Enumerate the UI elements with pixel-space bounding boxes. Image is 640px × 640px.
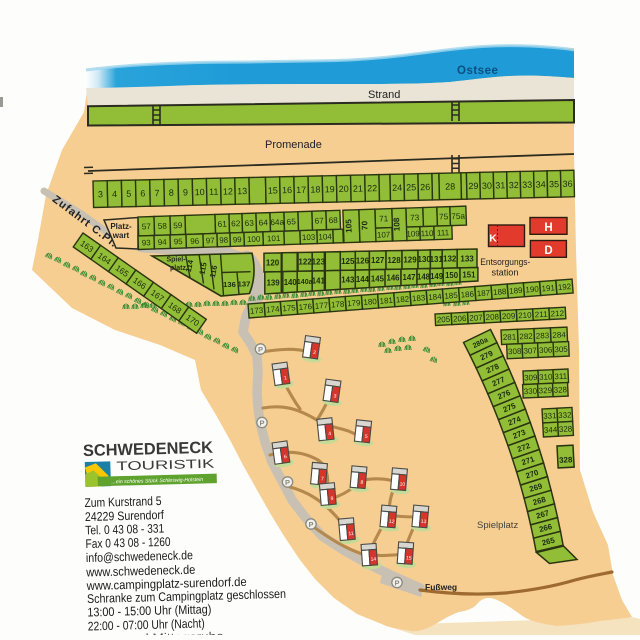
svg-text:24: 24 [392, 183, 402, 193]
svg-text:28: 28 [445, 181, 455, 191]
svg-text:18: 18 [310, 184, 320, 194]
svg-text:4: 4 [112, 189, 117, 199]
svg-text:Entsorgungs-: Entsorgungs- [480, 257, 530, 267]
svg-text:191: 191 [541, 283, 556, 293]
svg-text:143: 143 [341, 276, 355, 285]
svg-text:64: 64 [259, 218, 269, 227]
svg-text:3: 3 [98, 189, 103, 199]
svg-text:D: D [544, 245, 552, 257]
svg-text:25: 25 [406, 182, 416, 192]
svg-text:13: 13 [237, 186, 247, 196]
svg-text:181: 181 [379, 296, 394, 306]
svg-text:127: 127 [371, 256, 385, 265]
svg-text:K: K [489, 233, 497, 245]
svg-text:96: 96 [190, 237, 200, 246]
svg-text:109: 109 [406, 229, 420, 238]
svg-text:137: 137 [238, 280, 251, 289]
svg-text:35: 35 [549, 179, 559, 189]
svg-text:111: 111 [437, 228, 450, 237]
svg-text:140: 140 [284, 278, 298, 287]
svg-text:93: 93 [142, 238, 152, 247]
svg-text:Platz-: Platz- [110, 222, 132, 231]
svg-text:175: 175 [282, 303, 297, 313]
svg-text:16: 16 [282, 185, 292, 195]
svg-text:104: 104 [318, 232, 332, 241]
svg-text:185: 185 [444, 291, 459, 301]
svg-text:13: 13 [421, 519, 427, 525]
svg-text:133: 133 [460, 254, 474, 263]
svg-text:20: 20 [339, 184, 349, 194]
svg-text:192: 192 [558, 282, 573, 292]
svg-text:173: 173 [250, 306, 265, 316]
svg-text:62: 62 [231, 219, 241, 228]
svg-text:19: 19 [325, 184, 335, 194]
svg-text:70: 70 [360, 220, 369, 230]
svg-text:189: 189 [509, 286, 524, 296]
svg-text:31: 31 [495, 180, 505, 190]
svg-text:328: 328 [559, 455, 573, 465]
svg-text:75: 75 [439, 212, 449, 221]
svg-text:190: 190 [525, 285, 540, 295]
svg-text:187: 187 [476, 288, 491, 298]
svg-text:P: P [285, 478, 290, 487]
svg-text:10: 10 [195, 187, 205, 197]
svg-text:15: 15 [268, 185, 278, 195]
svg-text:310: 310 [539, 372, 553, 382]
svg-text:332: 332 [558, 410, 572, 420]
svg-text:141: 141 [312, 277, 326, 286]
svg-text:147: 147 [402, 273, 415, 282]
svg-text:94: 94 [158, 238, 168, 247]
svg-text:212: 212 [550, 309, 564, 319]
svg-text:281: 281 [503, 332, 517, 342]
svg-text:309: 309 [524, 373, 538, 383]
svg-text:11: 11 [348, 531, 354, 537]
svg-text:282: 282 [519, 332, 533, 342]
svg-text:146: 146 [386, 274, 400, 283]
svg-text:26: 26 [420, 182, 430, 192]
svg-text:71: 71 [379, 214, 389, 223]
svg-text:station: station [492, 267, 519, 277]
svg-text:209: 209 [502, 311, 516, 321]
svg-text:330: 330 [524, 386, 538, 396]
svg-text:129: 129 [403, 256, 417, 265]
svg-text:311: 311 [554, 372, 568, 382]
svg-text:Spiel-: Spiel- [166, 257, 186, 264]
svg-text:308: 308 [508, 347, 522, 357]
svg-text:331: 331 [543, 411, 557, 421]
svg-text:P: P [394, 578, 399, 587]
svg-text:5: 5 [126, 189, 131, 199]
svg-text:128: 128 [387, 256, 401, 265]
svg-text:P: P [259, 418, 264, 427]
svg-text:122: 122 [298, 258, 312, 267]
svg-text:Promenade: Promenade [265, 139, 322, 151]
svg-text:61: 61 [218, 220, 228, 229]
svg-text:136: 136 [223, 280, 236, 289]
svg-text:306: 306 [539, 345, 553, 355]
svg-text:148: 148 [417, 272, 431, 281]
svg-text:67: 67 [315, 216, 325, 225]
svg-text:328: 328 [559, 424, 573, 434]
svg-text:307: 307 [523, 346, 537, 356]
svg-text:150: 150 [445, 271, 459, 280]
svg-text:11: 11 [209, 187, 219, 197]
svg-text:32: 32 [509, 180, 519, 190]
svg-text:wart: wart [112, 231, 130, 240]
svg-text:9: 9 [183, 187, 188, 197]
svg-text:125: 125 [341, 257, 355, 266]
svg-text:131: 131 [430, 255, 444, 264]
svg-text:329: 329 [539, 386, 553, 396]
svg-text:206: 206 [453, 314, 467, 324]
svg-text:126: 126 [356, 257, 370, 266]
svg-text:178: 178 [331, 299, 346, 309]
svg-text:101: 101 [267, 234, 281, 243]
svg-text:207: 207 [469, 313, 483, 323]
svg-text:284: 284 [552, 330, 566, 340]
svg-text:Spielplatz: Spielplatz [477, 520, 518, 531]
svg-text:184: 184 [428, 292, 443, 302]
svg-text:100: 100 [247, 235, 261, 244]
svg-text:17: 17 [296, 185, 306, 195]
svg-text:6: 6 [140, 188, 145, 198]
svg-text:H: H [544, 222, 552, 234]
svg-text:Strand: Strand [368, 89, 400, 101]
svg-text:30: 30 [482, 181, 492, 191]
svg-text:68: 68 [329, 216, 339, 225]
svg-text:123: 123 [312, 257, 326, 266]
svg-text:107: 107 [377, 230, 391, 239]
svg-text:140a: 140a [297, 279, 313, 286]
svg-text:145: 145 [371, 274, 385, 283]
svg-text:Fußweg: Fußweg [425, 582, 457, 592]
svg-text:144: 144 [356, 275, 370, 284]
svg-text:120: 120 [266, 258, 280, 267]
svg-text:TOURISTIK: TOURISTIK [116, 457, 215, 474]
svg-text:180: 180 [363, 297, 378, 307]
svg-text:12: 12 [223, 186, 233, 196]
svg-text:176: 176 [298, 302, 313, 312]
svg-text:188: 188 [493, 287, 508, 297]
svg-text:95: 95 [174, 237, 184, 246]
svg-text:P: P [258, 345, 263, 354]
svg-text:12: 12 [389, 519, 395, 525]
svg-text:29: 29 [468, 181, 478, 191]
svg-text:65: 65 [287, 217, 297, 226]
svg-text:59: 59 [173, 221, 183, 230]
svg-text:36: 36 [562, 179, 572, 189]
svg-text:183: 183 [412, 293, 427, 303]
svg-text:63: 63 [245, 219, 255, 228]
svg-text:99: 99 [233, 235, 243, 244]
svg-text:75a: 75a [451, 212, 465, 221]
svg-text:182: 182 [396, 294, 411, 304]
svg-text:174: 174 [266, 304, 281, 314]
svg-text:186: 186 [460, 290, 475, 300]
svg-text:208: 208 [485, 312, 499, 322]
svg-text:108: 108 [392, 217, 401, 231]
svg-text:149: 149 [430, 272, 444, 281]
svg-text:210: 210 [518, 311, 532, 321]
svg-text:73: 73 [410, 213, 420, 222]
svg-text:211: 211 [535, 310, 549, 320]
svg-text:P: P [308, 520, 313, 529]
svg-text:22: 22 [367, 183, 377, 193]
svg-text:177: 177 [314, 301, 329, 311]
svg-text:97: 97 [206, 236, 216, 245]
svg-text:305: 305 [554, 345, 568, 355]
svg-text:Ostsee: Ostsee [457, 65, 498, 77]
svg-text:33: 33 [522, 180, 532, 190]
svg-text:105: 105 [344, 219, 353, 233]
svg-text:179: 179 [347, 298, 362, 308]
svg-text:283: 283 [536, 331, 550, 341]
svg-text:139: 139 [267, 279, 281, 288]
svg-text:8: 8 [169, 188, 174, 198]
svg-text:7: 7 [154, 188, 159, 198]
svg-text:103: 103 [302, 233, 316, 242]
svg-text:64a: 64a [270, 218, 284, 227]
svg-text:21: 21 [353, 183, 363, 193]
svg-text:57: 57 [142, 222, 152, 231]
svg-text:110: 110 [421, 229, 435, 238]
svg-text:10: 10 [399, 481, 405, 487]
svg-text:34: 34 [536, 179, 546, 189]
svg-text:98: 98 [219, 236, 229, 245]
svg-text:14: 14 [370, 556, 376, 562]
svg-text:151: 151 [462, 271, 476, 280]
svg-text:328: 328 [553, 385, 567, 395]
svg-text:205: 205 [437, 315, 451, 325]
svg-text:58: 58 [158, 222, 168, 231]
svg-text:15: 15 [406, 555, 412, 561]
svg-text:132: 132 [443, 255, 457, 264]
svg-text:344: 344 [544, 425, 558, 435]
